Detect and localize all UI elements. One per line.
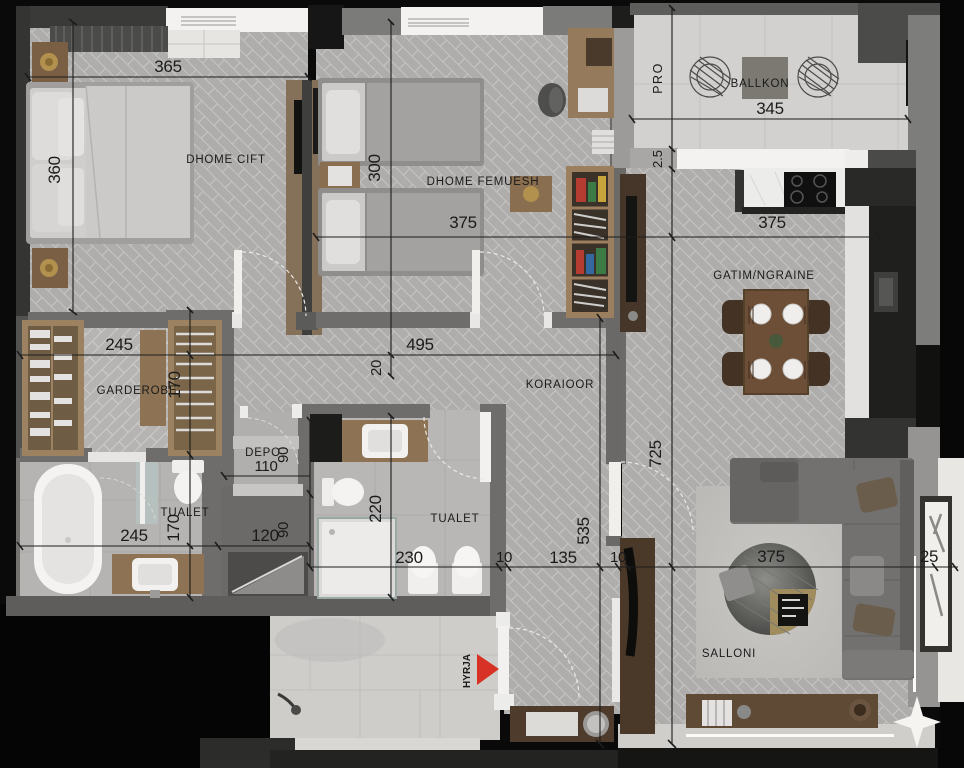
svg-text:GATIM/NGRAINE: GATIM/NGRAINE [713, 270, 815, 282]
svg-text:300: 300 [365, 154, 384, 181]
svg-text:360: 360 [45, 156, 64, 183]
svg-text:PRO: PRO [651, 62, 665, 94]
svg-text:HYRJA: HYRJA [462, 654, 473, 688]
svg-text:DHOME FEMUESH: DHOME FEMUESH [427, 176, 540, 188]
svg-text:DHOME CIFT: DHOME CIFT [186, 154, 266, 166]
svg-text:10: 10 [610, 549, 626, 566]
svg-text:GARDEROBE: GARDEROBE [97, 385, 178, 397]
svg-text:25: 25 [920, 547, 938, 566]
svg-text:TUALET: TUALET [431, 513, 480, 525]
svg-text:SALLONI: SALLONI [702, 648, 756, 660]
svg-text:345: 345 [756, 99, 783, 118]
svg-text:2.5: 2.5 [650, 150, 665, 168]
svg-text:375: 375 [449, 213, 476, 232]
svg-text:725: 725 [646, 440, 665, 467]
svg-text:375: 375 [758, 213, 785, 232]
svg-text:90: 90 [275, 522, 292, 538]
svg-text:10: 10 [496, 549, 512, 566]
svg-text:495: 495 [406, 335, 433, 354]
svg-text:135: 135 [549, 548, 576, 567]
svg-text:DEPO: DEPO [245, 447, 281, 459]
svg-text:TUALET: TUALET [161, 507, 210, 519]
svg-text:BALLKON: BALLKON [731, 78, 790, 90]
svg-text:20: 20 [368, 360, 385, 376]
svg-text:535: 535 [574, 517, 593, 544]
svg-text:375: 375 [757, 547, 784, 566]
svg-text:245: 245 [120, 526, 147, 545]
svg-text:230: 230 [395, 548, 422, 567]
svg-text:220: 220 [366, 495, 385, 522]
svg-text:KORAIOOR: KORAIOOR [526, 379, 594, 391]
svg-text:245: 245 [105, 335, 132, 354]
svg-text:365: 365 [154, 57, 181, 76]
